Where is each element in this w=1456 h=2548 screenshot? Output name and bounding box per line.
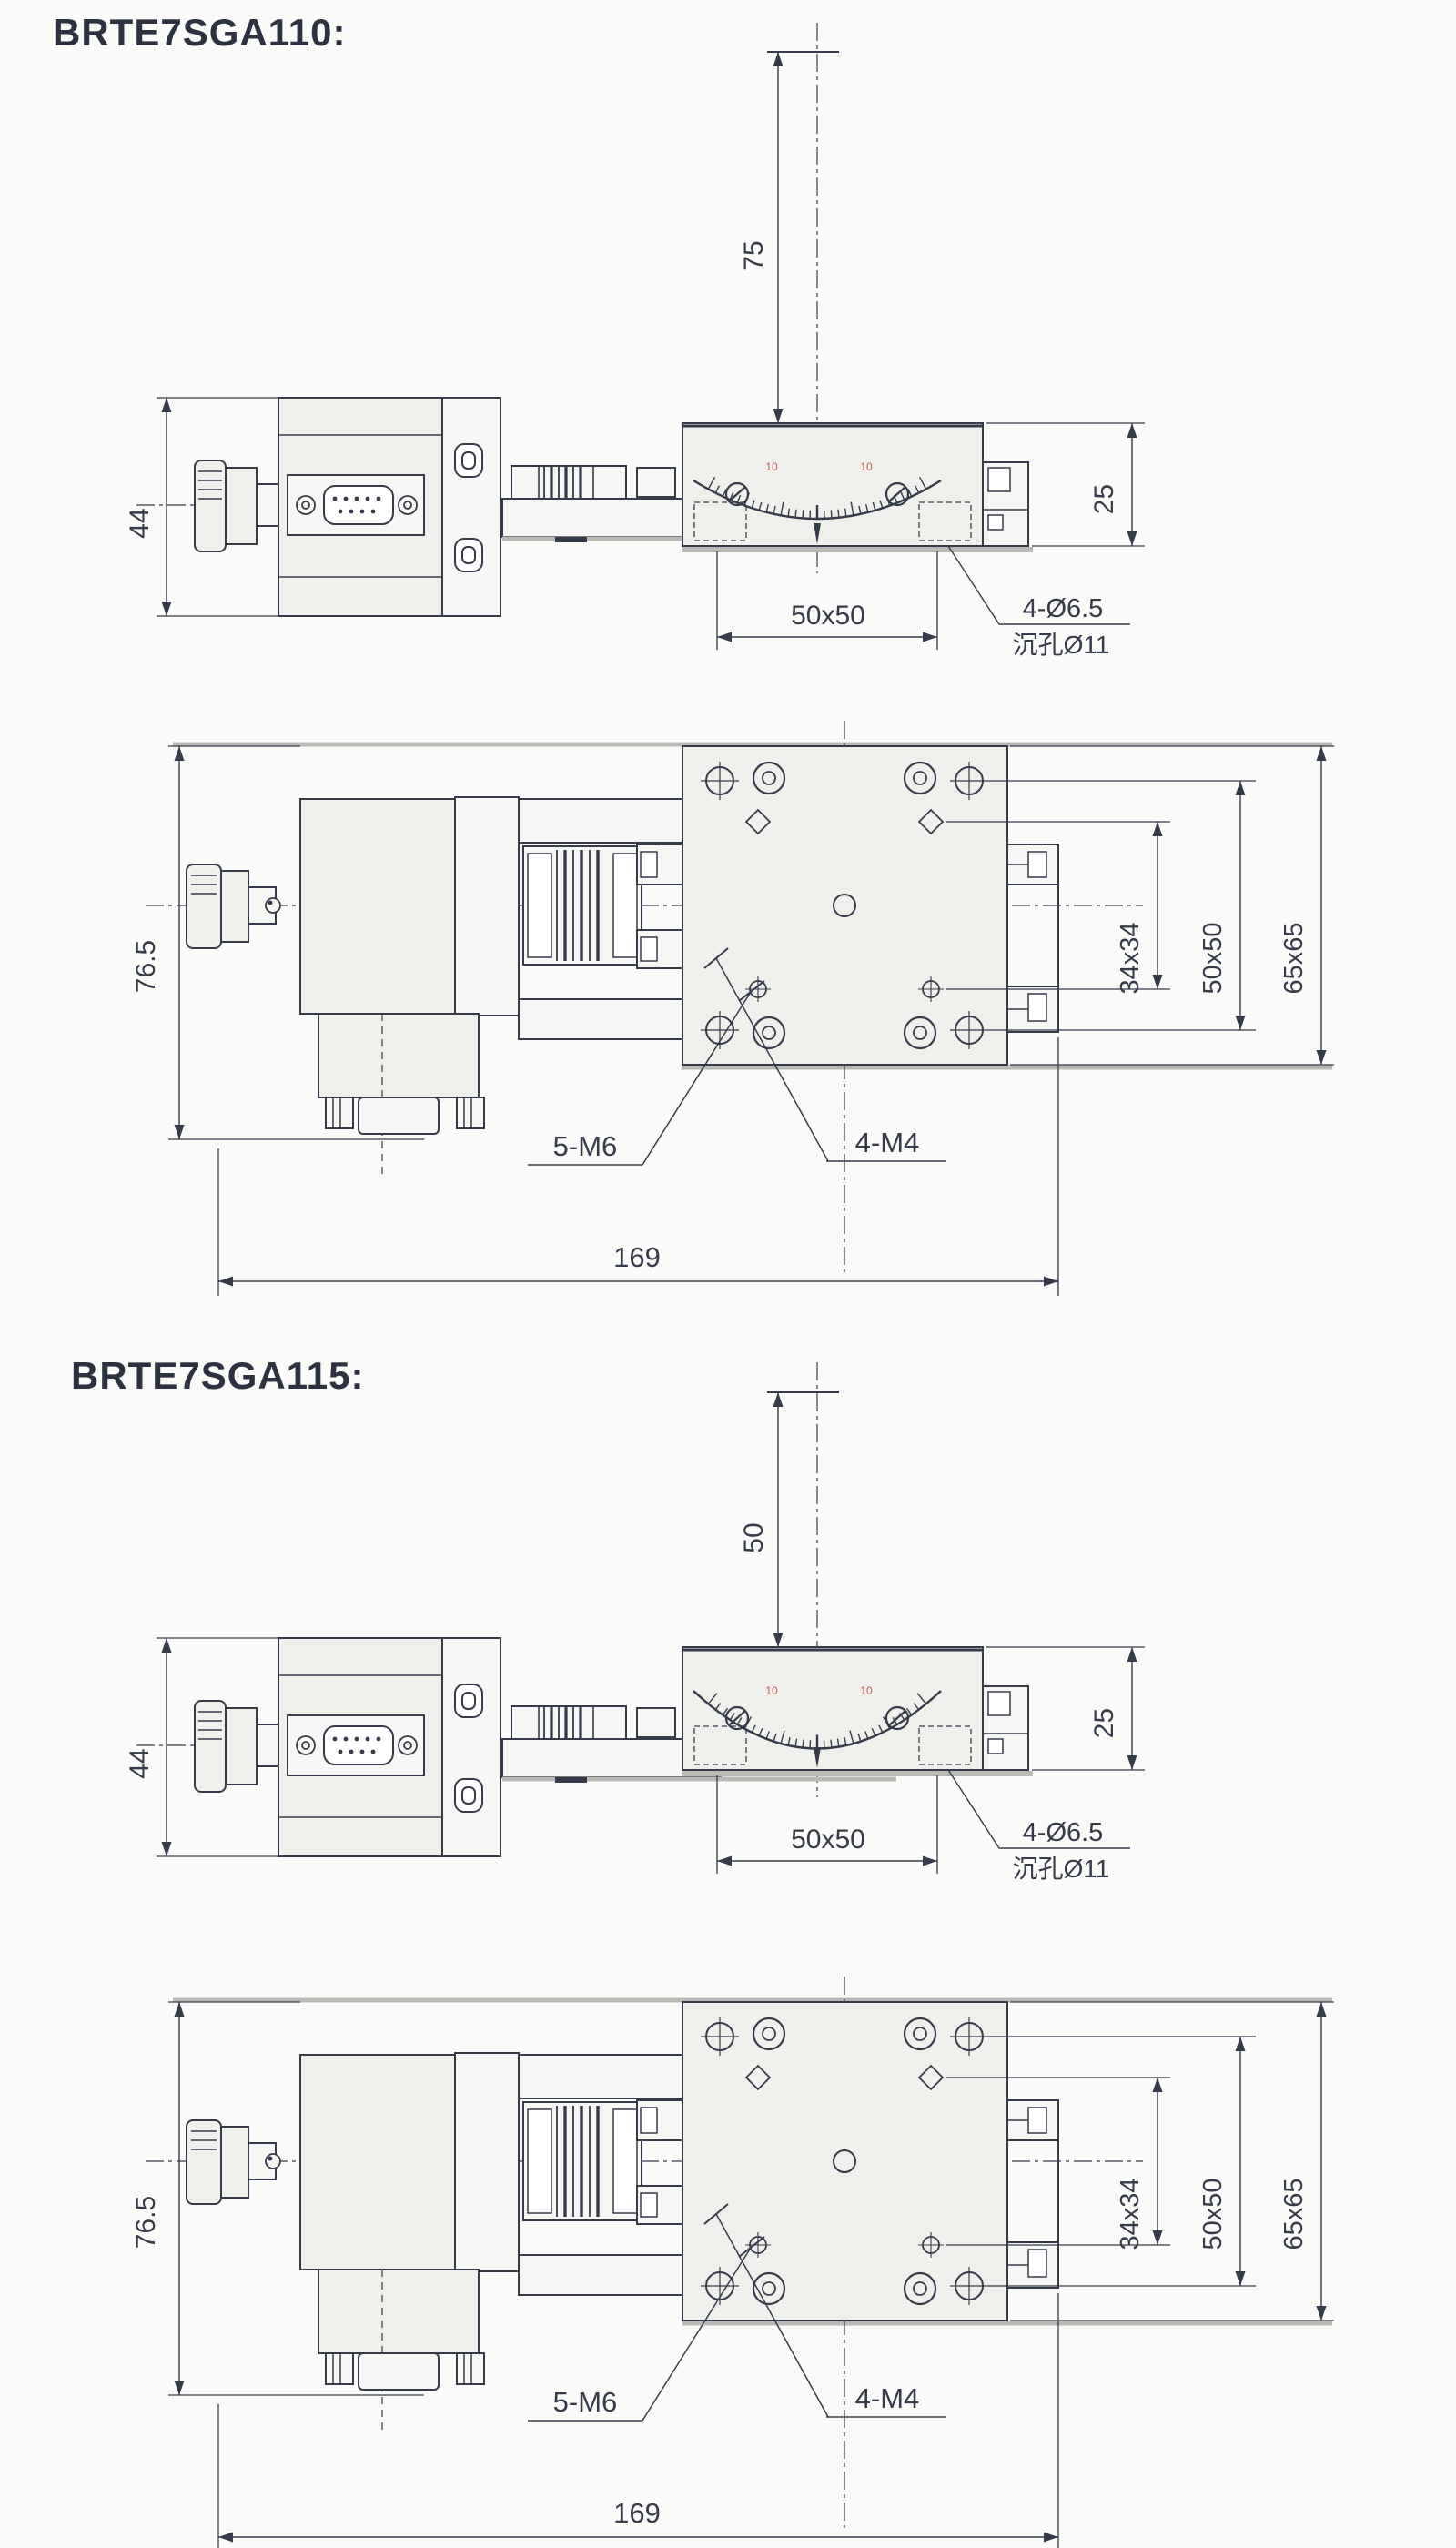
dim-arrow: [1127, 423, 1137, 438]
body-dim-label: 44: [125, 1748, 155, 1778]
scale-number-left: 10: [765, 1684, 778, 1697]
db9-pin: [371, 510, 376, 514]
coupling-cap-right: [613, 2109, 637, 2213]
db9-pin: [371, 1750, 376, 1754]
motor-face-plate: [442, 398, 500, 616]
top-platform: [682, 2002, 1007, 2320]
scale-tick: [803, 510, 804, 518]
coupling-cap-left: [528, 854, 551, 957]
outer-dim-label: 65x65: [1279, 2178, 1309, 2250]
span-dim-label: 50x50: [791, 1825, 865, 1855]
height-dim-label: 75: [739, 240, 769, 270]
dim-arrow: [1236, 2271, 1246, 2286]
counterbore-note-line2: 沉孔Ø11: [1013, 1855, 1110, 1883]
outer-dim-label: 65x65: [1279, 922, 1309, 994]
bracket-bar-top: [519, 799, 682, 843]
length-dim-label: 169: [613, 2497, 661, 2529]
db9-flange: [359, 1097, 439, 1134]
mount-ear-bottom-hole: [462, 547, 475, 563]
slider-left-bottom-detail: [641, 2193, 657, 2217]
dim-arrow: [1317, 2306, 1327, 2320]
dim-arrow: [773, 1392, 784, 1407]
m6-note-label: 5-M6: [553, 1130, 618, 1162]
scale-number-right: 10: [860, 460, 873, 473]
db9-flange: [359, 2353, 439, 2390]
scale-number-left: 10: [765, 460, 778, 473]
db9-pin: [339, 1750, 343, 1754]
dim-arrow: [218, 2533, 233, 2543]
motor-lower-body: [318, 2270, 479, 2353]
end-block-detail: [988, 468, 1010, 491]
coupling-cap-right: [613, 854, 637, 957]
model-1-top-view: 76.534x3450x5065x655-M64-M4169: [131, 1977, 1334, 2548]
dim-arrow: [162, 1842, 172, 1856]
m4-note-label: 4-M4: [855, 2382, 920, 2414]
db9-pin: [366, 497, 370, 501]
slider-left-top-detail: [641, 852, 657, 877]
dim-arrow: [218, 1277, 233, 1287]
end-block-detail: [988, 1692, 1010, 1715]
mid-dim-label: 50x50: [1198, 2178, 1228, 2250]
end-block-detail: [988, 1739, 1003, 1754]
dim-arrow: [162, 398, 172, 412]
scale-tick: [795, 510, 796, 518]
db9-pin: [366, 1737, 370, 1742]
adjust-knob-top: [187, 2120, 221, 2204]
dim-arrow: [923, 1856, 937, 1866]
mid-dim-label: 50x50: [1198, 922, 1228, 994]
dim-arrow: [1153, 822, 1163, 836]
db9-pin: [333, 497, 338, 501]
coupling-housing: [511, 466, 626, 499]
dim-arrow: [773, 1633, 784, 1647]
stub-screw-dot: [268, 901, 273, 905]
stub-screw: [266, 898, 280, 913]
counterbore-note-line1: 4-Ø6.5: [1023, 1818, 1104, 1847]
drawing-sheet: 754410102550x504-Ø6.5沉孔Ø1176.534x3450x50…: [0, 0, 1456, 2548]
dim-arrow: [162, 1638, 172, 1653]
knob-collar-top: [221, 871, 248, 942]
dim-arrow: [717, 1856, 732, 1866]
goniometer-stage: [682, 423, 983, 546]
top-platform: [682, 746, 1007, 1065]
dim-arrow: [717, 632, 732, 642]
knob-collar: [226, 1708, 257, 1785]
db9-lug-right: [457, 1097, 484, 1128]
dim-arrow: [1127, 1755, 1137, 1770]
span-dim-label: 50x50: [791, 601, 865, 631]
dim-arrow: [175, 2381, 185, 2395]
length-dim-label: 169: [613, 1241, 661, 1273]
dim-arrow: [1236, 2037, 1246, 2051]
stage-dim-label: 25: [1089, 1708, 1119, 1738]
db9-pin: [377, 1737, 381, 1742]
model-0-top-view: 76.534x3450x5065x655-M64-M4169: [131, 721, 1334, 1296]
inner-dim-label: 34x34: [1116, 2178, 1145, 2250]
m4-note-label: 4-M4: [855, 1127, 920, 1158]
width-dim-label: 76.5: [131, 2196, 161, 2249]
motor-face-plate: [442, 1638, 500, 1856]
coupling-spacer: [637, 468, 675, 497]
scale-tick: [831, 510, 832, 518]
width-dim-label: 76.5: [131, 940, 161, 993]
adjust-knob: [195, 1701, 226, 1792]
db9-lug-right: [457, 2353, 484, 2384]
db9-lug-left: [326, 2353, 353, 2384]
dim-arrow: [1317, 746, 1327, 761]
model-0-side-view: 754410102550x504-Ø6.5沉孔Ø11: [125, 23, 1145, 659]
rail-block-top-detail: [1028, 852, 1046, 877]
mount-ear-top-hole: [462, 1693, 475, 1709]
db9-pin: [349, 1750, 354, 1754]
dim-arrow: [773, 52, 784, 66]
dim-arrow: [1127, 1647, 1137, 1662]
dim-arrow: [1044, 2533, 1058, 2543]
knob-collar: [226, 468, 257, 544]
db9-pin: [333, 1737, 338, 1742]
dim-arrow: [773, 409, 784, 423]
coupling-housing: [511, 1706, 626, 1739]
motor-face-plate-top: [455, 797, 519, 1016]
knob-collar-top: [221, 2127, 248, 2198]
dim-arrow: [1044, 1277, 1058, 1287]
mount-ear-bottom-hole: [462, 1787, 475, 1804]
stub-screw-dot: [268, 2157, 273, 2161]
motor-face-plate-top: [455, 2053, 519, 2271]
height-dim-label: 50: [739, 1522, 769, 1552]
bracket-bar-bottom: [519, 2255, 682, 2295]
motor-body-top: [300, 799, 455, 1014]
scale-tick: [838, 510, 839, 518]
counterbore-note-line1: 4-Ø6.5: [1023, 594, 1104, 623]
end-block-detail: [988, 515, 1003, 530]
scale-number-right: 10: [860, 1684, 873, 1697]
db9-shell: [324, 486, 393, 524]
db9-pin: [355, 1737, 359, 1742]
slider-left-top-detail: [641, 2108, 657, 2133]
model-title-brte7sga110: BRTE7SGA110:: [53, 11, 346, 55]
motor-body-top: [300, 2055, 455, 2270]
db9-pin: [349, 510, 354, 514]
db9-pin: [344, 1737, 349, 1742]
dim-arrow: [1153, 2230, 1163, 2245]
inner-dim-label: 34x34: [1116, 922, 1145, 994]
slider-left-bottom-detail: [641, 937, 657, 961]
dim-arrow: [1236, 1016, 1246, 1030]
model-title-brte7sga115: BRTE7SGA115:: [71, 1354, 364, 1398]
dim-arrow: [1153, 2078, 1163, 2092]
dim-arrow: [162, 602, 172, 616]
db9-shell: [324, 1726, 393, 1764]
counterbore-note-line2: 沉孔Ø11: [1013, 631, 1110, 659]
stub-screw: [266, 2154, 280, 2169]
db9-lug-left: [326, 1097, 353, 1128]
dim-arrow: [1127, 531, 1137, 546]
dim-arrow: [923, 632, 937, 642]
dim-arrow: [1317, 2002, 1327, 2017]
dim-arrow: [1153, 975, 1163, 989]
scale-tick: [803, 1740, 804, 1748]
dim-arrow: [175, 1125, 185, 1139]
knob-stub: [257, 1724, 278, 1766]
body-dim-label: 44: [125, 508, 155, 538]
stage-dim-label: 25: [1089, 484, 1119, 514]
rail-block-top-detail: [1028, 2108, 1046, 2133]
adjust-knob-top: [187, 864, 221, 948]
db9-pin: [344, 497, 349, 501]
db9-pin: [360, 1750, 365, 1754]
coupling-spacer: [637, 1708, 675, 1737]
scale-tick: [831, 1740, 832, 1748]
adjust-knob: [195, 460, 226, 551]
coupling-cap-left: [528, 2109, 551, 2213]
knob-stub: [257, 484, 278, 526]
mount-ear-top-hole: [462, 452, 475, 469]
db9-pin: [377, 497, 381, 501]
db9-pin: [339, 510, 343, 514]
dim-arrow: [175, 746, 185, 761]
m6-note-label: 5-M6: [553, 2386, 618, 2418]
motor-lower-body: [318, 1014, 479, 1097]
db9-pin: [355, 497, 359, 501]
rail-block-bottom-detail: [1028, 994, 1046, 1021]
bracket-bar-top: [519, 2055, 682, 2098]
dim-arrow: [1317, 1050, 1327, 1065]
dim-arrow: [1236, 781, 1246, 795]
cad-canvas: 754410102550x504-Ø6.5沉孔Ø1176.534x3450x50…: [0, 0, 1456, 2548]
db9-pin: [360, 510, 365, 514]
bracket-bar-bottom: [519, 999, 682, 1039]
dim-arrow: [175, 2002, 185, 2017]
model-1-side-view: 504410102550x504-Ø6.5沉孔Ø11: [125, 1362, 1145, 1883]
rail-block-bottom-detail: [1028, 2250, 1046, 2277]
